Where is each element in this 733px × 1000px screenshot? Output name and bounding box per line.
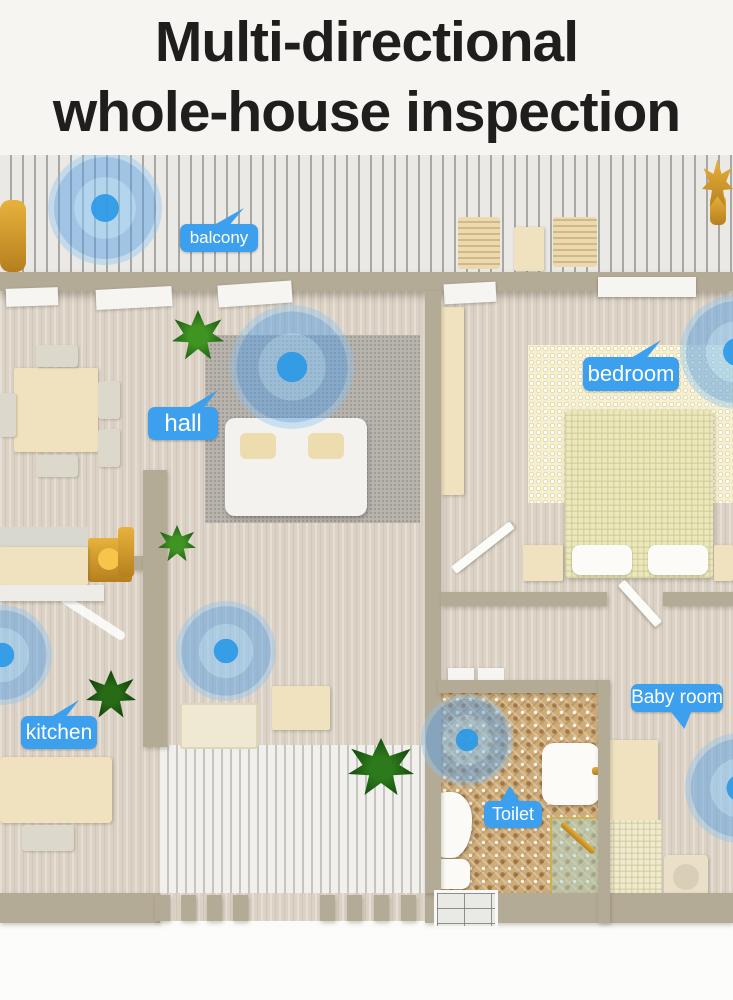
railing-post [155,895,170,921]
dining-chair [36,455,78,477]
door-open [451,521,515,574]
dining-chair [36,345,78,367]
doormat [180,703,258,749]
baby-bed [607,820,662,896]
room-label-balcony-text: balcony [190,228,249,248]
dining-chair [98,381,120,419]
page-footer-blank [0,930,733,1000]
kitchen-chair [22,825,74,851]
label-tail-icon [667,711,695,729]
radar-ripple-kitchen [0,605,52,705]
room-label-kitchen-text: kitchen [26,721,93,745]
wall-center-left [143,470,167,747]
label-tail-icon [51,700,79,717]
wall-center [425,291,441,893]
room-label-toilet-text: Toilet [492,804,534,825]
door-open [618,580,662,628]
sofa-pillow [308,433,344,459]
room-label-toilet: Toilet [484,801,542,828]
window-blinds [598,277,696,297]
dining-chair [0,393,16,437]
deck-chair [458,217,500,269]
room-label-balcony: balcony [180,224,258,252]
radar-ripple-toilet [421,694,513,786]
room-label-hall: hall [148,407,218,440]
title-line-1: Multi-directional [0,14,733,71]
radar-ripple-balcony [48,155,162,265]
dining-table [14,368,98,452]
baby-wardrobe [604,740,658,824]
room-label-hall-text: hall [164,410,201,438]
sofa-pillow [240,433,276,459]
railing-post [233,895,248,921]
railing-post [401,895,416,921]
bench [272,686,330,730]
railing-post [320,895,335,921]
storage-box-dial [673,864,699,890]
nightstand [714,545,733,581]
title-line-2: whole-house inspection [0,84,733,141]
promo-image: Multi-directional whole-house inspection [0,0,733,1000]
sink [542,743,600,805]
wall-toilet-top [438,680,606,693]
yellow-jar [118,527,134,577]
window [444,282,497,305]
kitchen-cabinet [0,547,88,585]
wall-toilet-babyroom [598,680,610,923]
nightstand [523,545,563,581]
kitchen-shelf [0,585,104,601]
kitchen-table [0,757,112,823]
pillow [648,545,708,575]
deck-table [514,227,544,271]
kitchen-counter-top [0,527,88,547]
wall-babyroom-top [663,592,733,606]
railing-post [181,895,196,921]
radar-ripple-babyroom [685,733,733,843]
room-label-baby-room: Baby room [631,684,723,712]
railing-post [374,895,389,921]
floor-plan: balcony hall bedroom kitchen Baby room T… [0,155,733,930]
window [217,280,292,307]
bedroom-wardrobe [441,307,464,495]
railing-post [207,895,222,921]
wall-bedroom-bottom [441,592,607,606]
pillow [572,545,632,575]
deck-chair [553,217,597,267]
window [6,287,59,307]
radar-ripple-corridor [176,601,276,701]
window [96,286,173,310]
radar-ripple-hall [230,305,354,429]
wall-bottom-left [0,893,160,923]
dining-chair [98,429,120,467]
gold-vase [0,200,26,272]
kitchen-plant [86,670,136,720]
stool-knob [98,548,120,570]
railing-post [347,895,362,921]
room-label-baby-room-text: Baby room [631,687,723,709]
window-frame [434,890,498,929]
room-label-kitchen: kitchen [21,716,97,749]
room-label-bedroom: bedroom [583,357,679,391]
room-label-bedroom-text: bedroom [588,361,675,387]
